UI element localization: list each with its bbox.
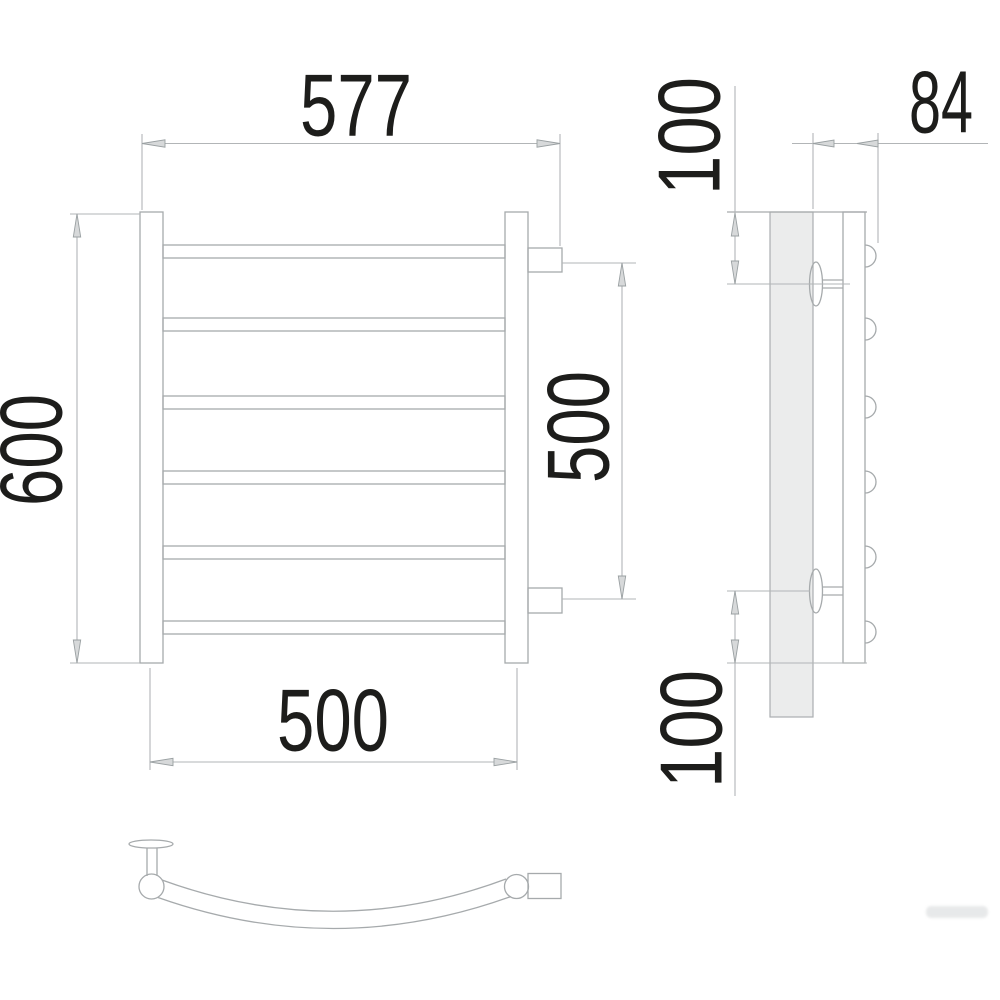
dim-label-total-height: 600 [0,394,81,506]
dim-arrowhead [142,140,165,147]
left-post [140,212,163,663]
plan-curved-rung-back-edge [158,897,511,929]
technical-drawing-page: 577 600 500 500 100 [0,0,1000,1000]
top-wall-bracket [528,248,562,272]
dim-bracket-span: 500 [529,263,637,599]
plan-left-post-section [139,874,164,899]
dim-arrowhead [618,576,625,599]
bottom-bracket-stem [822,587,843,595]
rung-bar-2 [163,318,505,331]
dim-arrowhead [813,140,834,147]
dim-arrowhead [73,640,80,663]
rung-hook-1 [865,245,876,267]
plan-right-post-section [505,875,529,899]
rung-hook-5 [865,546,876,568]
rail-profile [843,212,865,663]
dim-arrowhead [731,640,738,663]
dim-arrowhead [731,213,738,236]
dim-label-top-offset: 100 [640,77,739,195]
rung-bar-6 [163,621,505,634]
rung-hook-2 [865,318,876,340]
dim-arrowhead [731,261,738,284]
rung-bar-4 [163,471,505,484]
dim-arrowhead [537,140,560,147]
rung-hook-6 [865,621,876,643]
dim-arrowhead [857,140,878,147]
rung-hook-3 [865,396,876,418]
dim-label-bottom-offset: 100 [642,670,741,788]
plan-right-bracket [528,874,561,899]
dim-label-total-width: 577 [300,56,412,155]
technical-drawing-canvas: 577 600 500 500 100 [0,0,1000,1000]
dim-bottom-offset: 100 [642,591,868,796]
wall-plate [770,212,813,717]
dim-label-depth: 84 [909,53,973,152]
rung-bar-5 [163,546,505,559]
plan-bracket-flange [129,840,173,848]
dim-bottom-width: 500 [150,668,517,770]
plan-curved-rung-front-edge [162,879,506,911]
dim-total-height: 600 [0,214,140,663]
dim-arrowhead [494,758,517,765]
dim-top-offset: 100 [640,77,851,284]
dim-arrowhead [150,758,173,765]
plan-bracket-stem [147,848,157,876]
side-view [727,212,876,717]
bottom-wall-bracket [528,588,562,613]
dim-total-width: 577 [142,56,560,247]
watermark [926,906,988,918]
rung-bar-1 [163,245,505,258]
dim-arrowhead [731,591,738,614]
dim-label-bottom-width: 500 [277,671,389,770]
rung-bar-3 [163,396,505,409]
dim-depth: 84 [792,53,988,244]
dim-label-bracket-span: 500 [529,371,628,483]
right-post [505,212,528,663]
dim-arrowhead [73,214,80,237]
bottom-plan-view [129,840,561,929]
rung-hook-4 [865,471,876,493]
front-view [140,212,562,663]
dim-arrowhead [618,263,625,286]
